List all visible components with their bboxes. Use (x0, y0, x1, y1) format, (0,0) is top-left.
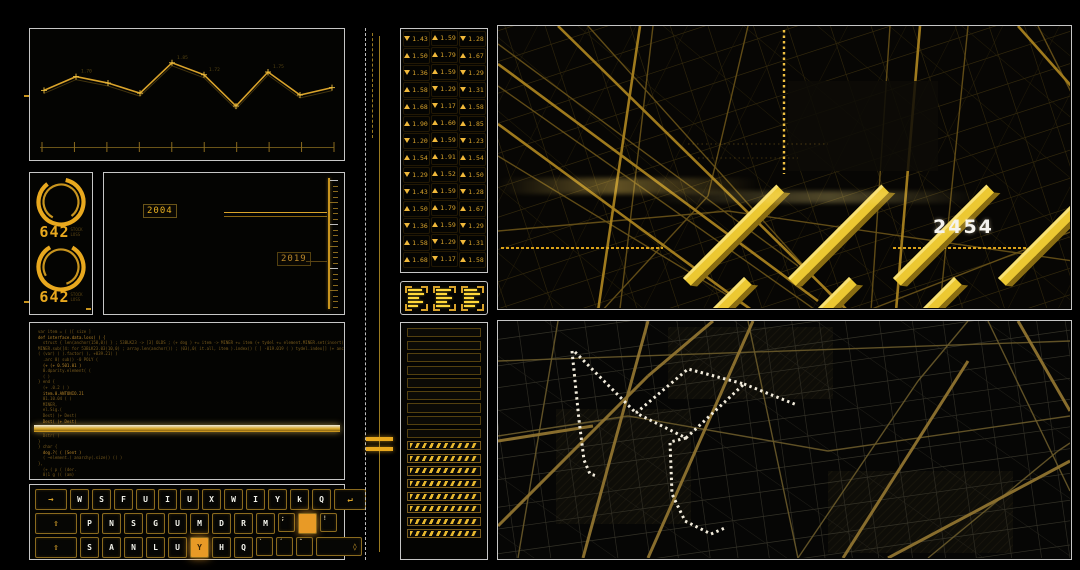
status-bar-hazard (407, 504, 481, 513)
ticker-cell: 1.17 (431, 251, 458, 267)
status-bar-empty (407, 366, 481, 375)
ticker-cell: 1.29 (403, 167, 430, 183)
eq-bar (408, 297, 420, 300)
code-highlight-row (34, 425, 340, 432)
triangle-down-icon (404, 223, 410, 228)
ticker-value: 1.58 (412, 86, 428, 94)
hazard-stripes (410, 456, 478, 461)
status-bar-empty (407, 378, 481, 387)
slider-track-dashed-amber (372, 33, 373, 138)
stacked-bars-icon (461, 286, 484, 311)
triangle-down-icon (404, 172, 410, 177)
hud-dashboard: 1.701.851.721.75 642 STOCK LOSS 642 (0, 0, 1080, 570)
ticker-value: 1.79 (440, 204, 456, 212)
eq-bar (464, 305, 476, 308)
key-sym[interactable]: ⇧ (35, 513, 77, 534)
ticker-grid: 1.431.591.281.501.791.671.361.591.291.58… (402, 30, 486, 268)
ruler-tick (333, 252, 338, 253)
ticker-cell: 1.31 (459, 82, 486, 98)
triangle-up-icon (460, 172, 466, 177)
ticker-cell: 1.58 (459, 252, 486, 268)
line-chart-panel: 1.701.851.721.75 (29, 28, 345, 161)
ruler-tick (333, 257, 338, 258)
ticker-cell: 1.20 (403, 133, 430, 149)
key-sym[interactable]: ; (278, 513, 295, 532)
ticker-value: 1.59 (440, 68, 456, 76)
triangle-up-icon (432, 154, 438, 159)
key-sym[interactable]: ´ (276, 537, 293, 556)
triangle-down-icon (460, 87, 466, 92)
ruler-tick (333, 186, 338, 187)
svg-text:1.70: 1.70 (81, 69, 92, 75)
ticker-cell: 1.68 (403, 252, 430, 268)
key-U[interactable]: U (168, 537, 187, 558)
key-highlighted[interactable]: Y (190, 537, 209, 558)
ticker-value: 1.29 (440, 85, 456, 93)
code-line: struct { len(anchor(150,0)) } ; 53BLK23 … (38, 340, 336, 346)
city-map-bottom[interactable] (497, 320, 1072, 560)
timeline-connector-line (306, 261, 327, 262)
triangle-down-icon (404, 36, 410, 41)
ticker-value: 1.68 (412, 103, 428, 111)
ticker-value: 1.17 (440, 102, 456, 110)
ruler-tick (330, 290, 338, 291)
ticker-value: 1.52 (440, 170, 456, 178)
eq-bars (408, 289, 425, 308)
key-U[interactable]: U (168, 513, 187, 534)
eq-bar (436, 305, 450, 308)
triangle-up-icon (404, 53, 410, 58)
ruler-tick (330, 224, 338, 225)
keyboard-row-2: ⇧PNSGUMDRM;! (35, 513, 339, 534)
ticker-value: 1.28 (468, 35, 484, 43)
ruler-tick (333, 301, 338, 302)
ticker-cell: 1.54 (403, 150, 430, 166)
key-U[interactable]: U (136, 489, 155, 510)
key-U[interactable]: U (180, 489, 199, 510)
ticker-cell: 1.58 (403, 82, 430, 98)
key-S[interactable]: S (92, 489, 111, 510)
slider-track-line[interactable] (379, 36, 380, 552)
ticker-value: 1.20 (412, 137, 428, 145)
triangle-up-icon (460, 155, 466, 160)
hazard-stripes (410, 481, 478, 486)
edge-tick (24, 301, 29, 303)
key-M[interactable]: M (256, 513, 275, 534)
key-Q[interactable]: Q (234, 537, 253, 558)
triangle-up-icon (460, 121, 466, 126)
ticker-cell: 1.59 (431, 183, 458, 199)
svg-text:1.72: 1.72 (209, 67, 220, 73)
key-sym[interactable]: ` (256, 537, 273, 556)
ticker-value: 1.29 (468, 69, 484, 77)
ticker-cell: 1.90 (403, 116, 430, 132)
triangle-up-icon (432, 171, 438, 176)
status-bar-hazard (407, 466, 481, 475)
status-bar-empty (407, 328, 481, 337)
key-sym[interactable]: → (35, 489, 67, 510)
hazard-stripes (410, 494, 478, 499)
triangle-down-icon (460, 36, 466, 41)
eq-bar (408, 289, 422, 292)
timeline-panel: 2004 2019 (103, 172, 345, 315)
ticker-cell: 1.23 (459, 133, 486, 149)
eq-bar (464, 293, 480, 296)
status-bar-hazard (407, 479, 481, 488)
triangle-up-icon (432, 222, 438, 227)
key-M[interactable]: M (190, 513, 209, 534)
ticker-cell: 1.79 (431, 200, 458, 216)
ticker-value: 1.31 (468, 86, 484, 94)
triangle-up-icon (432, 52, 438, 57)
triangle-down-icon (432, 239, 438, 244)
eq-bars (436, 289, 453, 308)
triangle-down-icon (460, 223, 466, 228)
status-bar-empty (407, 341, 481, 350)
key-G[interactable]: G (146, 513, 165, 534)
ruler-tick (333, 307, 338, 308)
key-W[interactable]: W (224, 489, 243, 510)
ticker-value: 1.58 (468, 256, 484, 264)
ticker-value: 1.59 (440, 136, 456, 144)
status-bar-empty (407, 403, 481, 412)
triangle-up-icon (432, 35, 438, 40)
key-I[interactable]: I (158, 489, 177, 510)
ticker-cell: 1.59 (431, 217, 458, 233)
ticker-value: 1.59 (440, 221, 456, 229)
slider-handle[interactable] (366, 437, 393, 441)
ruler-tick (333, 191, 338, 192)
ticker-cell: 1.28 (459, 184, 486, 200)
svg-text:1.75: 1.75 (273, 64, 284, 70)
eq-bar (464, 301, 479, 304)
ticker-cell: 1.58 (459, 99, 486, 115)
map-value-label: 2454 (933, 216, 994, 238)
ring-gauge-icon (33, 176, 89, 228)
triangle-up-icon (432, 188, 438, 193)
triangle-up-icon (432, 137, 438, 142)
ticker-cell: 1.59 (431, 132, 458, 148)
ticker-value: 1.59 (440, 187, 456, 195)
eq-bar (436, 289, 451, 292)
status-bar-empty (407, 391, 481, 400)
ticker-value: 1.17 (440, 255, 456, 263)
ticker-value: 1.36 (412, 222, 428, 230)
ticker-value: 1.36 (412, 69, 428, 77)
gauges-panel: 642 STOCK LOSS 642 STOCK LOSS (29, 172, 93, 315)
timeline-end-label: 2019 (277, 252, 311, 266)
ruler-tick (333, 208, 338, 209)
key-k[interactable]: k (290, 489, 309, 510)
ticker-cell: 1.60 (431, 115, 458, 131)
key-W[interactable]: W (70, 489, 89, 510)
key-R[interactable]: R (234, 513, 253, 534)
triangle-down-icon (404, 189, 410, 194)
eq-bar (408, 305, 418, 308)
eq-bar (436, 297, 452, 300)
key-Y[interactable]: Y (268, 489, 287, 510)
ticker-cell: 1.59 (431, 64, 458, 80)
key-F[interactable]: F (114, 489, 133, 510)
ruler-tick (330, 180, 338, 181)
ticker-cell: 1.67 (459, 48, 486, 64)
code-terminal-panel[interactable]: var item = ( )[ size ]def interface.data… (29, 322, 345, 480)
ticker-value: 1.91 (440, 153, 456, 161)
key-N[interactable]: N (124, 537, 143, 558)
key-Q[interactable]: Q (312, 489, 331, 510)
triangle-up-icon (432, 69, 438, 74)
slider-handle[interactable] (366, 447, 393, 451)
ticker-cell: 1.28 (459, 31, 486, 47)
ruler-tick (330, 202, 338, 203)
eq-bars (464, 289, 481, 308)
ticker-value: 1.23 (468, 137, 484, 145)
triangle-up-icon (404, 87, 410, 92)
ticker-value: 1.58 (412, 239, 428, 247)
route-dotted-path (575, 352, 636, 413)
city-map-top[interactable]: 2454 (497, 25, 1072, 310)
ticker-cell: 1.85 (459, 116, 486, 132)
ruler-tick (333, 213, 338, 214)
key-L[interactable]: L (146, 537, 165, 558)
gauge-value: 642 (39, 290, 69, 304)
triangle-down-icon (460, 240, 466, 245)
edge-tick (86, 308, 91, 310)
status-bar-hazard (407, 441, 481, 450)
ticker-cell: 1.43 (403, 31, 430, 47)
ticker-panel: 1.431.591.281.501.791.671.361.591.291.58… (400, 28, 488, 273)
ticker-cell: 1.29 (459, 65, 486, 81)
gauge-value: 642 (39, 225, 69, 239)
hazard-stripes (410, 519, 478, 524)
triangle-up-icon (432, 205, 438, 210)
key-sym[interactable]: ! (320, 513, 337, 532)
ticker-value: 1.54 (412, 154, 428, 162)
ticker-value: 1.29 (468, 222, 484, 230)
ring-gauge: 642 STOCK LOSS (33, 176, 89, 239)
ticker-value: 1.67 (468, 52, 484, 60)
triangle-up-icon (460, 104, 466, 109)
triangle-down-icon (432, 103, 438, 108)
ticker-value: 1.67 (468, 205, 484, 213)
line-chart: 1.701.851.721.75 (30, 29, 343, 159)
ticker-value: 1.29 (440, 238, 456, 246)
keyboard-row-3: ⇧SANLUYHQ`´ˆ◊ (35, 537, 339, 558)
ticker-cell: 1.54 (459, 150, 486, 166)
ruler-tick (333, 197, 338, 198)
key-A[interactable]: A (102, 537, 121, 558)
ticker-value: 1.85 (468, 120, 484, 128)
ticker-cell: 1.52 (431, 166, 458, 182)
ruler-tick (333, 241, 338, 242)
triangle-down-icon (460, 138, 466, 143)
virtual-keyboard: →WSFUIUXWIYkQ↵⇧PNSGUMDRM;!⇧SANLUYHQ`´ˆ◊ (29, 484, 345, 560)
key-X[interactable]: X (202, 489, 221, 510)
scan-glow (648, 191, 978, 203)
triangle-down-icon (404, 138, 410, 143)
ticker-cell: 1.68 (403, 99, 430, 115)
hazard-stripes (410, 531, 478, 536)
ruler-tick (333, 285, 338, 286)
ring-gauge-icon (33, 241, 89, 293)
ticker-cell: 1.50 (403, 48, 430, 64)
key-H[interactable]: H (212, 537, 231, 558)
stacked-bars-icon (433, 286, 456, 311)
ruler-tick (333, 296, 338, 297)
triangle-up-icon (404, 240, 410, 245)
key-P[interactable]: P (80, 513, 99, 534)
ruler-tick (333, 219, 338, 220)
ticker-cell: 1.31 (459, 235, 486, 251)
ticker-cell: 1.36 (403, 218, 430, 234)
ticker-value: 1.50 (412, 205, 428, 213)
ticker-value: 1.50 (468, 171, 484, 179)
key-highlighted[interactable] (298, 513, 317, 534)
ticker-cell: 1.59 (431, 30, 458, 46)
eq-bar (436, 293, 448, 296)
gauge-sublabel: LOSS (71, 297, 83, 302)
ticker-value: 1.59 (440, 34, 456, 42)
key-S[interactable]: S (80, 537, 99, 558)
status-bar-hazard (407, 454, 481, 463)
key-I[interactable]: I (246, 489, 265, 510)
equalizer-strip (400, 281, 488, 315)
ruler-tick (333, 230, 338, 231)
ticker-value: 1.54 (468, 154, 484, 162)
ticker-value: 1.28 (468, 188, 484, 196)
ticker-cell: 1.50 (403, 201, 430, 217)
ring-gauge: 642 STOCK LOSS (33, 241, 89, 304)
triangle-up-icon (404, 104, 410, 109)
code-line: 0(1 g )( (am) (38, 472, 336, 478)
ticker-value: 1.60 (440, 119, 456, 127)
ruler-tick (333, 235, 338, 236)
key-N[interactable]: N (102, 513, 121, 534)
ruler-tick (330, 268, 338, 269)
timeline-connector-line (224, 212, 327, 217)
ticker-cell: 1.29 (459, 218, 486, 234)
triangle-up-icon (404, 257, 410, 262)
triangle-down-icon (404, 70, 410, 75)
status-bar-hazard (407, 492, 481, 501)
ruler-tick (330, 246, 338, 247)
key-sym[interactable]: ◊ (316, 537, 362, 556)
key-S[interactable]: S (124, 513, 143, 534)
triangle-up-icon (460, 53, 466, 58)
eq-bar (464, 289, 478, 292)
triangle-up-icon (432, 120, 438, 125)
timeline-start-label: 2004 (143, 204, 177, 218)
key-sym[interactable]: ⇧ (35, 537, 77, 558)
ticker-value: 1.79 (440, 51, 456, 59)
hazard-stripes (410, 468, 478, 473)
status-bars-panel (400, 322, 488, 560)
triangle-down-icon (460, 70, 466, 75)
code-line: Dest( (+ Dest( (38, 419, 336, 425)
eq-bar (408, 301, 423, 304)
keyboard-row-1: →WSFUIUXWIYkQ↵ (35, 489, 339, 510)
key-sym[interactable]: ˆ (296, 537, 313, 556)
eq-bar (408, 293, 424, 296)
triangle-up-icon (460, 206, 466, 211)
ticker-cell: 1.29 (431, 81, 458, 97)
ticker-cell: 1.91 (431, 149, 458, 165)
triangle-up-icon (404, 206, 410, 211)
ticker-value: 1.50 (412, 52, 428, 60)
ticker-cell: 1.29 (431, 234, 458, 250)
triangle-down-icon (432, 256, 438, 261)
ticker-cell: 1.50 (459, 167, 486, 183)
ruler-tick (333, 279, 338, 280)
ticker-cell: 1.17 (431, 98, 458, 114)
street-grid (498, 321, 1070, 558)
status-bar-hazard (407, 517, 481, 526)
ticker-cell: 1.58 (403, 235, 430, 251)
key-D[interactable]: D (212, 513, 231, 534)
eq-bar (436, 301, 447, 304)
triangle-down-icon (432, 86, 438, 91)
ticker-value: 1.43 (412, 35, 428, 43)
status-bar-empty (407, 353, 481, 362)
stacked-bars-icon (405, 286, 428, 311)
ruler-tick (333, 263, 338, 264)
slider-column (357, 28, 395, 560)
svg-text:1.85: 1.85 (177, 55, 188, 61)
status-bar-hazard (407, 529, 481, 538)
triangle-up-icon (460, 257, 466, 262)
ticker-value: 1.58 (468, 103, 484, 111)
ruler-tick (333, 274, 338, 275)
ticker-value: 1.90 (412, 120, 428, 128)
edge-tick (24, 95, 29, 97)
ticker-cell: 1.43 (403, 184, 430, 200)
ticker-value: 1.29 (412, 171, 428, 179)
street-grid (498, 26, 1070, 308)
slider-track-dashed[interactable] (365, 28, 366, 560)
ticker-value: 1.43 (412, 188, 428, 196)
gauge-sublabel: LOSS (71, 232, 83, 237)
triangle-down-icon (460, 189, 466, 194)
ticker-value: 1.68 (412, 256, 428, 264)
ticker-value: 1.31 (468, 239, 484, 247)
status-bar-empty (407, 416, 481, 425)
triangle-up-icon (404, 155, 410, 160)
ticker-cell: 1.67 (459, 201, 486, 217)
ticker-cell: 1.36 (403, 65, 430, 81)
ticker-cell: 1.79 (431, 47, 458, 63)
triangle-up-icon (404, 121, 410, 126)
hazard-stripes (410, 443, 478, 448)
hazard-stripes (410, 506, 478, 511)
eq-bar (464, 297, 474, 300)
status-bar-empty (407, 429, 481, 438)
